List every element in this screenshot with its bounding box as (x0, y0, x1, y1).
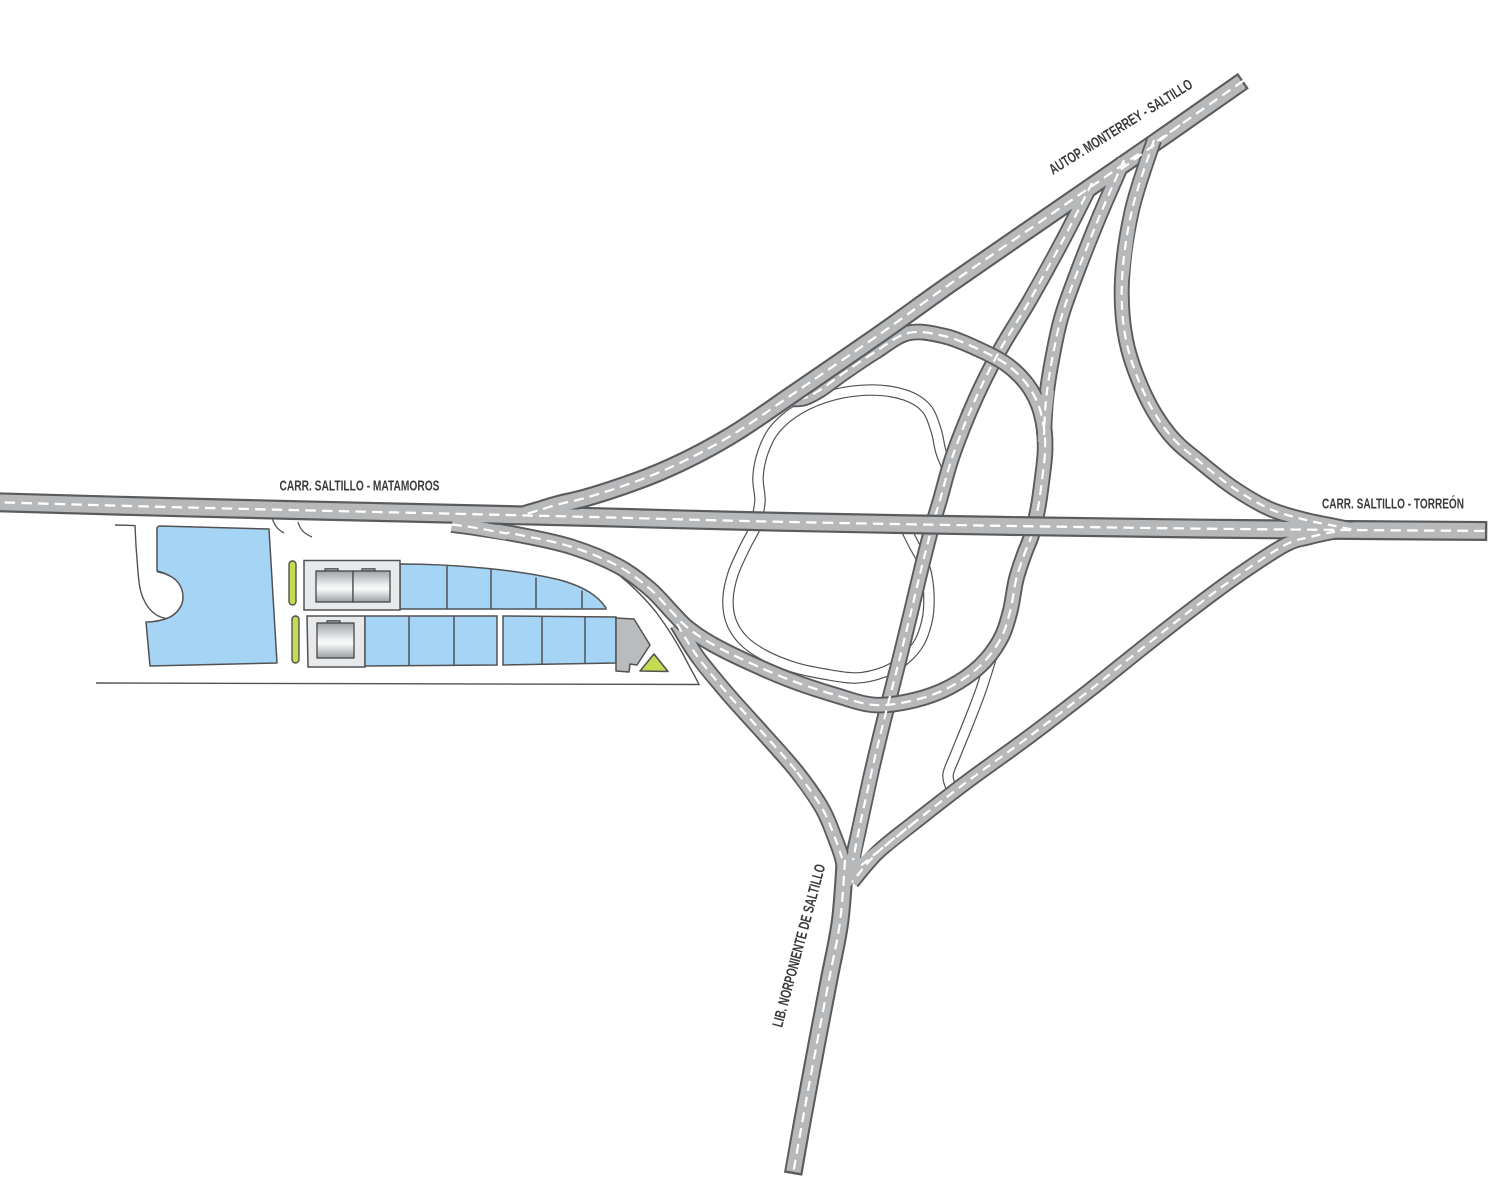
svg-text:CARR. SALTILLO - MATAMOROS: CARR. SALTILLO - MATAMOROS (280, 478, 440, 495)
svg-text:CARR. SALTILLO - TORREÓN: CARR. SALTILLO - TORREÓN (1322, 495, 1464, 513)
